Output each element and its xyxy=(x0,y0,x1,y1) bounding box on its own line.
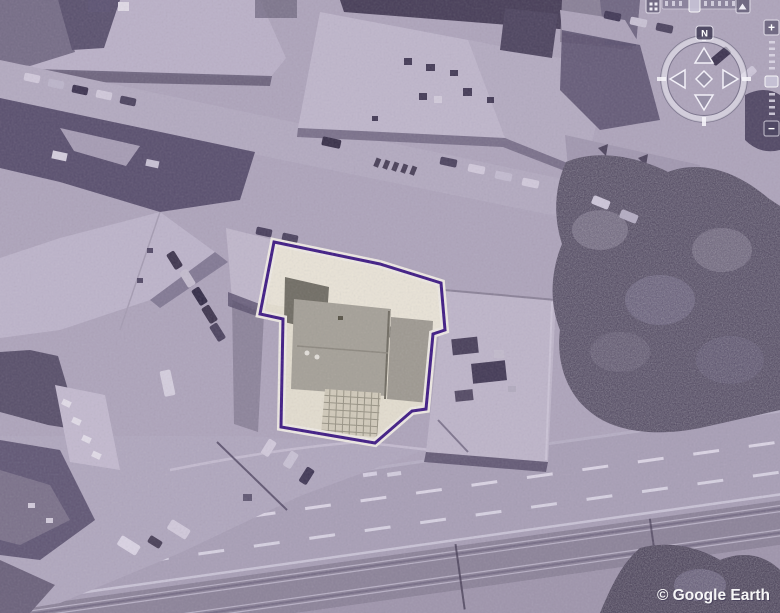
attribution: © Google Earth xyxy=(657,587,770,604)
tilt-handle[interactable] xyxy=(689,0,700,12)
google-earth-viewport: N + − © Google Earth © Google Earth xyxy=(0,0,780,613)
north-label: N xyxy=(701,29,708,40)
zoom-out-label: − xyxy=(768,122,775,136)
zoom-out-button[interactable]: − xyxy=(764,121,779,136)
zoom-in-button[interactable]: + xyxy=(764,20,779,35)
tilt-horizon-button[interactable] xyxy=(736,0,750,13)
zoom-handle[interactable] xyxy=(765,76,778,87)
zoom-in-label: + xyxy=(768,21,775,35)
tilt-top-down-button[interactable] xyxy=(646,0,660,13)
map-canvas[interactable]: N + − © Google Earth © Google Earth xyxy=(0,0,780,613)
north-button[interactable]: N xyxy=(696,26,713,40)
